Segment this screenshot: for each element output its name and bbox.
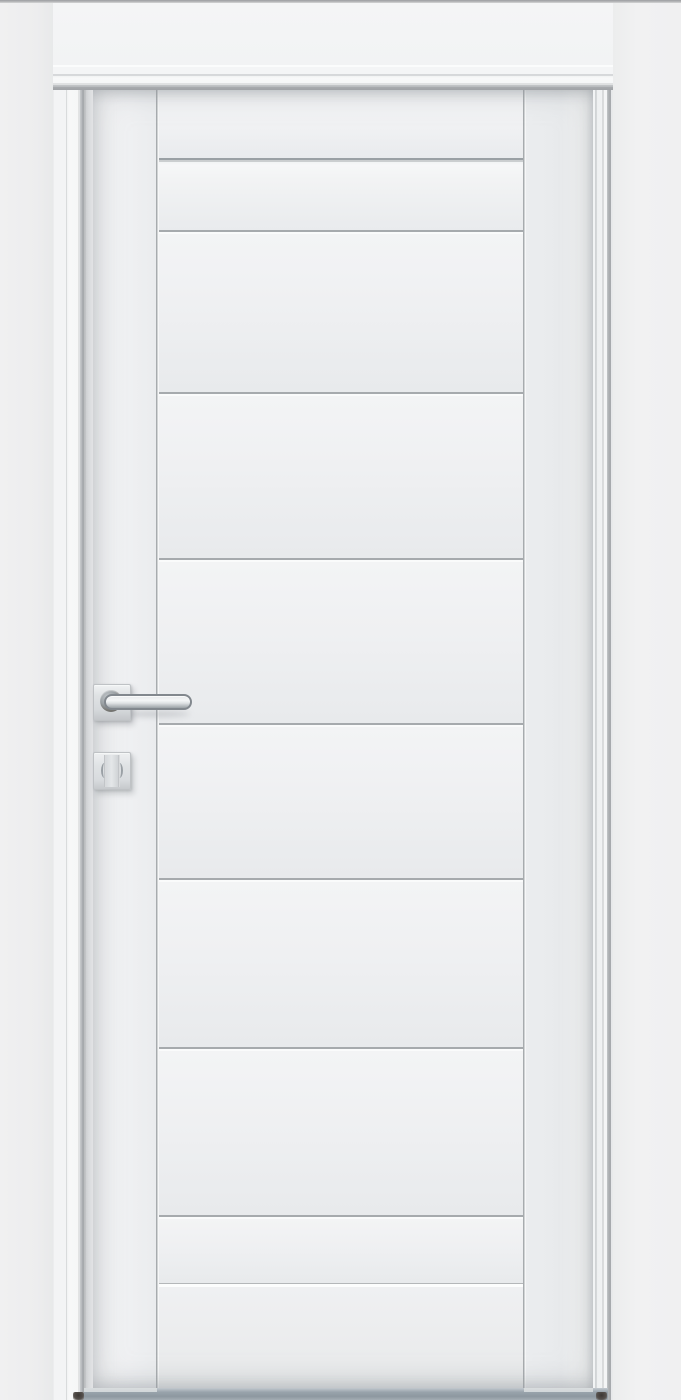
ceiling-shadow-line (0, 0, 681, 3)
door-product-photo: { "meta": { "subject": "Closed white int… (0, 0, 681, 1400)
casing-left (53, 65, 93, 1400)
wall-right (613, 0, 681, 1400)
door-leaf (93, 90, 593, 1388)
door-panel-band (157, 558, 524, 723)
door-panel-band (157, 1047, 524, 1215)
wall-left (0, 0, 53, 1400)
door-stile-right (524, 90, 593, 1388)
door-panel-band (157, 158, 524, 230)
lever-handle (104, 694, 192, 710)
casing-right (593, 65, 613, 1400)
door-panel-band (157, 723, 524, 878)
casing-top (53, 65, 613, 90)
casing-foot-shadow-right (596, 1392, 607, 1400)
door-bottom-rail (157, 1283, 524, 1388)
turn-arc-left (101, 763, 108, 778)
floor-gap-right-stile (524, 1388, 593, 1392)
door-panel-band (157, 1215, 524, 1283)
floor-gap-left-stile (84, 1388, 157, 1392)
door-top-rail (157, 90, 524, 158)
stile-groove-left (156, 90, 159, 1388)
door-panel-band (157, 230, 524, 392)
casing-foot-shadow-left (73, 1392, 84, 1400)
door-stile-left (93, 90, 157, 1388)
door-panel-band (157, 878, 524, 1047)
stile-groove-right (523, 90, 526, 1388)
door-panel-band (157, 392, 524, 558)
wall-header (53, 3, 613, 65)
turn-arc-right (116, 763, 123, 778)
door-center-column (157, 90, 524, 1388)
